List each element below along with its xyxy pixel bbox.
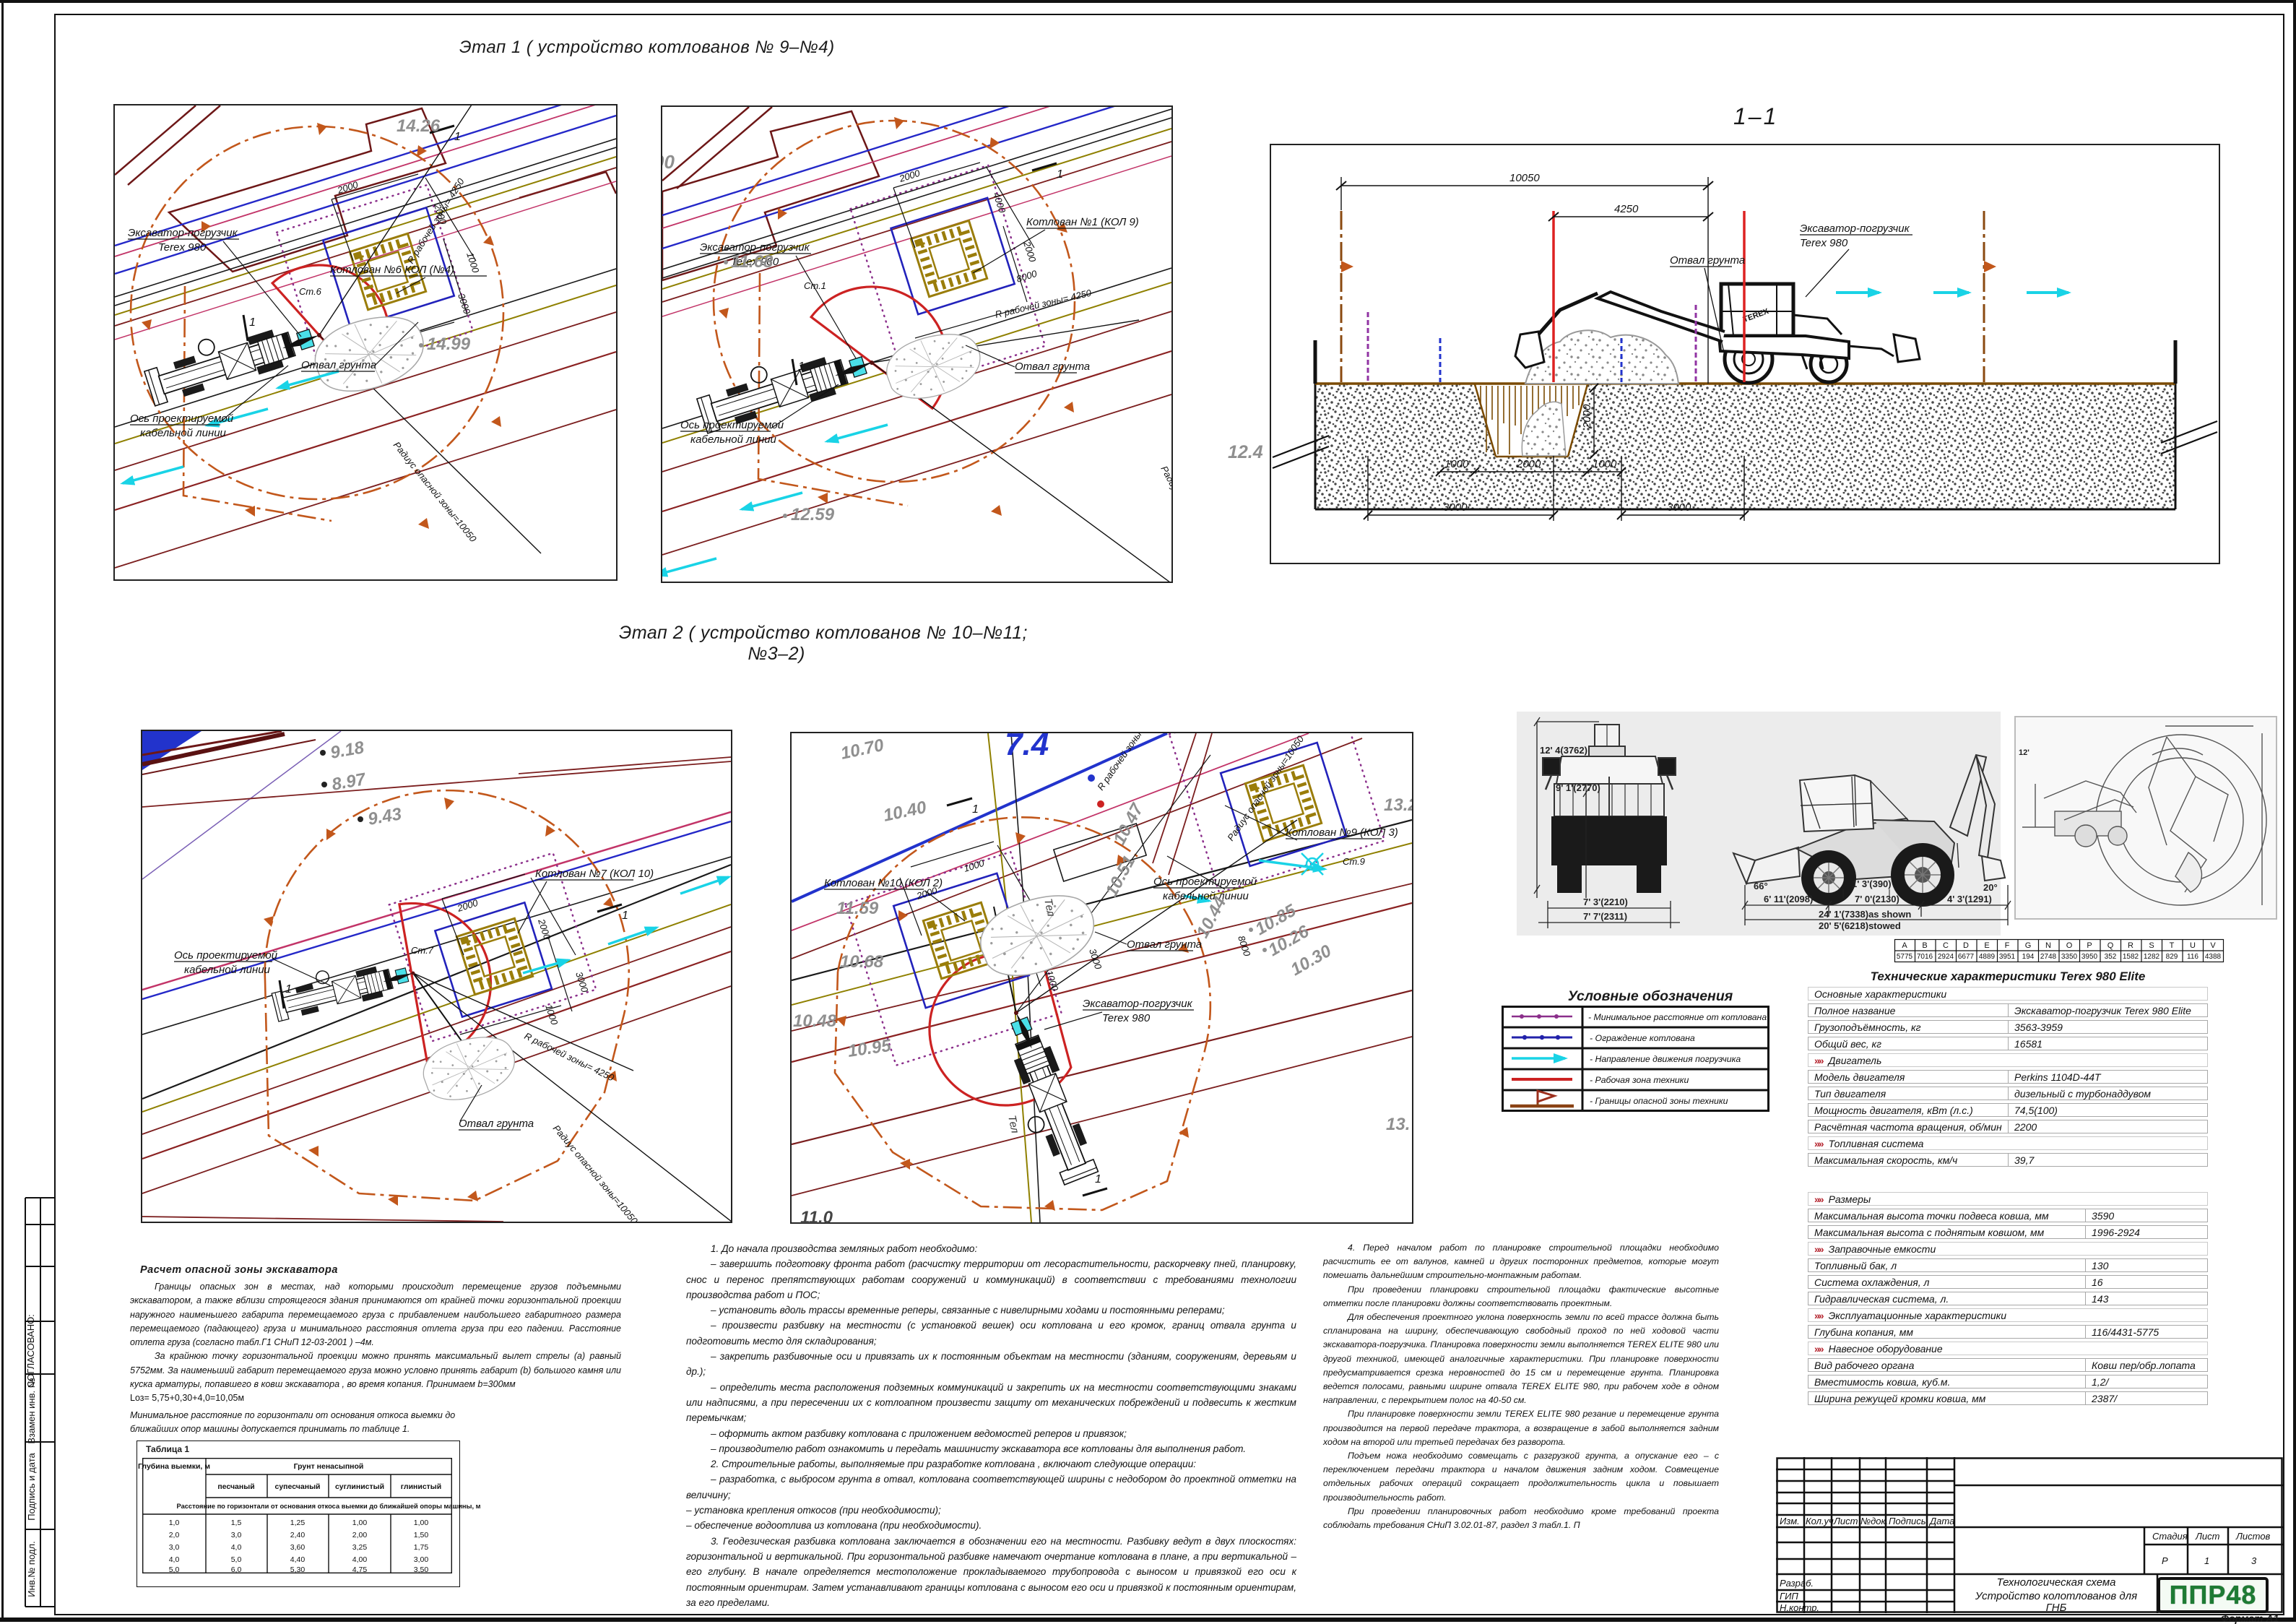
svg-text:4388: 4388 [2205, 953, 2222, 961]
svg-text:- Рабочая зона техники: - Рабочая зона техники [1590, 1075, 1689, 1085]
svg-text:E: E [1984, 941, 1989, 950]
svg-text:3000: 3000 [456, 292, 472, 316]
svg-text:Тел: Тел [1005, 1114, 1021, 1134]
svg-text:3000: 3000 [1667, 501, 1691, 514]
svg-text:Котлован №7 (КОЛ 10): Котлован №7 (КОЛ 10) [535, 868, 654, 880]
svg-text:1: 1 [1057, 168, 1063, 181]
svg-text:20°: 20° [1983, 882, 1998, 893]
svg-text:Радиус опасной зоны=10050: Радиус опасной зоны=10050 [1158, 464, 1173, 580]
svg-text:1: 1 [249, 316, 256, 329]
svg-text:Стадия: Стадия [2152, 1531, 2188, 1542]
svg-text:Взамен инв. №: Взамен инв. № [26, 1378, 37, 1443]
svg-text:Н.контр.: Н.контр. [1780, 1602, 1819, 1613]
svg-text:Технологическая схема: Технологическая схема [1997, 1576, 2116, 1589]
svg-text:Ст.9: Ст.9 [1343, 856, 1365, 867]
svg-text:A: A [1902, 941, 1907, 950]
svg-text:194: 194 [2022, 953, 2035, 961]
svg-text:20' 5'(6218)stowed: 20' 5'(6218)stowed [1819, 920, 1901, 931]
svg-text:829: 829 [2166, 953, 2178, 961]
svg-text:3,60: 3,60 [290, 1543, 306, 1552]
svg-text:12': 12' [2019, 748, 2029, 757]
svg-text:3000: 3000 [573, 970, 590, 994]
svg-text:1,50: 1,50 [414, 1531, 429, 1539]
svg-text:№док.: №док. [1860, 1516, 1888, 1526]
svg-text:11.59: 11.59 [836, 899, 879, 918]
svg-text:10.68: 10.68 [840, 952, 884, 972]
svg-text:суглинистый: суглинистый [335, 1482, 384, 1491]
svg-text:1: 1 [285, 983, 292, 995]
svg-text:10.95: 10.95 [846, 1036, 893, 1061]
svg-text:2000: 2000 [335, 179, 360, 196]
svg-text:B: B [1922, 941, 1927, 950]
svg-text:1: 1 [1095, 1173, 1101, 1185]
svg-text:4250: 4250 [1614, 203, 1639, 215]
svg-text:F: F [2005, 941, 2010, 950]
svg-text:3,0: 3,0 [169, 1543, 180, 1552]
svg-text:5,0: 5,0 [231, 1555, 242, 1564]
svg-text:Ось проектируемой: Ось проектируемой [1153, 876, 1257, 888]
svg-text:N: N [2045, 941, 2051, 950]
svg-text:6' 11'(2098): 6' 11'(2098) [1764, 894, 1813, 904]
svg-text:7' 7'(2311): 7' 7'(2311) [1583, 911, 1627, 922]
svg-text:5775: 5775 [1897, 953, 1913, 961]
svg-text:1: 1 [972, 803, 979, 816]
svg-text:1' 3'(390): 1' 3'(390) [1852, 878, 1892, 889]
svg-text:Эксаватор-погрузчик: Эксаватор-погрузчик [1083, 998, 1193, 1010]
svg-text:Ст.1: Ст.1 [804, 280, 826, 291]
svg-text:Отвал грунта: Отвал грунта [1015, 360, 1090, 373]
svg-text:Terex 980: Terex 980 [1800, 237, 1848, 249]
svg-text:3350: 3350 [2061, 953, 2078, 961]
svg-text:7' 3'(2210): 7' 3'(2210) [1583, 897, 1628, 907]
svg-text:5,30: 5,30 [290, 1565, 306, 1574]
svg-text:14.26: 14.26 [397, 116, 441, 136]
svg-text:V: V [2210, 941, 2216, 950]
svg-text:4,40: 4,40 [290, 1555, 306, 1564]
svg-text:Разраб.: Разраб. [1780, 1578, 1814, 1589]
svg-text:Дата: Дата [1928, 1516, 1954, 1526]
svg-text:Отвал грунта: Отвал грунта [301, 359, 376, 371]
svg-text:3,25: 3,25 [352, 1543, 368, 1552]
svg-text:4,75: 4,75 [352, 1565, 368, 1574]
svg-text:1,25: 1,25 [290, 1519, 306, 1527]
svg-text:3000: 3000 [1087, 947, 1104, 971]
svg-text:5,0: 5,0 [169, 1565, 180, 1574]
svg-text:- Минимальное расстояние от ко: - Минимальное расстояние от котлована [1588, 1012, 1767, 1022]
svg-text:2000: 2000 [455, 897, 480, 915]
svg-text:- Границы опасной зоны техники: - Границы опасной зоны техники [1590, 1096, 1728, 1106]
svg-text:7.4: 7.4 [1005, 732, 1049, 762]
svg-text:1000: 1000 [962, 858, 986, 874]
svg-text:Устройство колотлованов для: Устройство колотлованов для [1975, 1590, 2137, 1602]
svg-text:10.70: 10.70 [839, 735, 886, 764]
svg-text:6,0: 6,0 [231, 1565, 242, 1574]
svg-text:8000: 8000 [1015, 268, 1039, 285]
svg-text:Котлован №6 КОЛ (№4): Котлован №6 КОЛ (№4) [330, 264, 454, 276]
svg-text:C: C [1943, 941, 1949, 950]
svg-text:8000: 8000 [1236, 934, 1252, 958]
svg-text:Котлован №10 (КОЛ 2): Котлован №10 (КОЛ 2) [824, 877, 943, 889]
svg-text:3,0: 3,0 [231, 1531, 242, 1539]
svg-text:Котлован №9 (КОЛ 3): Котлован №9 (КОЛ 3) [1286, 826, 1398, 839]
svg-text:Листов: Листов [2235, 1531, 2271, 1542]
svg-text:супесчаный: супесчаный [275, 1482, 321, 1491]
svg-text:Р: Р [2162, 1555, 2168, 1566]
svg-text:Расстояние по горизонтали от о: Расстояние по горизонтали от основания о… [176, 1503, 480, 1510]
svg-text:1000: 1000 [1444, 458, 1469, 470]
svg-text:Эксаватор-погрузчик: Эксаватор-погрузчик [128, 227, 238, 239]
svg-text:P: P [2087, 941, 2092, 950]
svg-text:1000: 1000 [464, 251, 481, 275]
svg-text:14.99: 14.99 [427, 334, 471, 354]
svg-text:1: 1 [454, 131, 461, 143]
svg-text:2000: 2000 [1516, 458, 1541, 470]
svg-text:1,75: 1,75 [414, 1543, 429, 1552]
svg-text:2748: 2748 [2040, 953, 2057, 961]
svg-text:3,50: 3,50 [414, 1565, 429, 1574]
svg-text:Подпись: Подпись [1889, 1516, 1926, 1526]
svg-text:Кол.уч: Кол.уч [1806, 1516, 1834, 1526]
svg-text:66°: 66° [1754, 881, 1768, 891]
svg-text:2,40: 2,40 [290, 1531, 306, 1539]
svg-text:Ст.6: Ст.6 [299, 286, 322, 297]
svg-text:10.48: 10.48 [793, 1011, 837, 1031]
svg-text:1,5: 1,5 [231, 1519, 242, 1527]
svg-text:кабельной линии: кабельной линии [1163, 890, 1249, 902]
svg-text:2,00: 2,00 [352, 1531, 368, 1539]
svg-text:глинистый: глинистый [401, 1482, 441, 1491]
svg-text:2924: 2924 [1938, 953, 1954, 961]
svg-text:Отвал грунта: Отвал грунта [1127, 938, 1202, 951]
svg-text:Q: Q [2107, 941, 2114, 950]
svg-text:3000: 3000 [1443, 501, 1468, 514]
svg-text:Ось проектируемой: Ось проектируемой [174, 949, 278, 962]
svg-text:3951: 3951 [1999, 953, 2016, 961]
svg-text:3,00: 3,00 [414, 1555, 429, 1564]
svg-text:4,00: 4,00 [352, 1555, 368, 1564]
svg-text:Лист: Лист [1833, 1516, 1858, 1526]
svg-text:116: 116 [2187, 953, 2198, 961]
svg-text:10.51: 10.51 [1101, 852, 1139, 900]
svg-text:4889: 4889 [1979, 953, 1996, 961]
svg-text:Ось проектируемой: Ось проектируемой [130, 413, 234, 425]
svg-text:10.40: 10.40 [882, 798, 929, 826]
svg-text:- Ограждение котлована: - Ограждение котлована [1590, 1033, 1695, 1043]
svg-text:1,00: 1,00 [352, 1519, 368, 1527]
svg-text:Terex 980: Terex 980 [158, 241, 207, 254]
svg-text:Изм.: Изм. [1780, 1516, 1800, 1526]
svg-text:3950: 3950 [2081, 953, 2098, 961]
svg-text:Лист: Лист [2195, 1531, 2220, 1542]
svg-text:R: R [2128, 941, 2133, 950]
svg-text:11.68: 11.68 [731, 252, 774, 272]
svg-text:7' 0'(2130): 7' 0'(2130) [1855, 894, 1899, 904]
svg-text:Котлован №1 (КОЛ 9): Котлован №1 (КОЛ 9) [1026, 216, 1139, 228]
svg-text:R рабочей зоны= 4250: R рабочей зоны= 4250 [994, 287, 1093, 319]
svg-text:1: 1 [798, 360, 805, 373]
svg-text:СОГЛАСОВАНО:: СОГЛАСОВАНО: [25, 1314, 36, 1388]
svg-text:8.97: 8.97 [330, 769, 368, 795]
svg-text:G: G [2025, 941, 2032, 950]
svg-text:Отвал грунта: Отвал грунта [459, 1118, 534, 1130]
svg-text:3: 3 [2251, 1555, 2257, 1566]
svg-text:4,0: 4,0 [169, 1555, 180, 1564]
svg-text:Подпись и дата: Подпись и дата [26, 1452, 37, 1520]
svg-text:1282: 1282 [2144, 953, 2160, 961]
svg-text:9.18: 9.18 [329, 738, 365, 763]
svg-text:кабельной линии: кабельной линии [690, 433, 777, 446]
svg-text:1582: 1582 [2123, 953, 2139, 961]
svg-text:24' 1'(7338)as shown: 24' 1'(7338)as shown [1819, 909, 1911, 920]
svg-text:1: 1 [622, 910, 628, 922]
svg-text:13.: 13. [1386, 1115, 1410, 1134]
svg-text:12.59: 12.59 [791, 505, 835, 524]
svg-text:Грунт ненасыпной: Грунт ненасыпной [294, 1462, 364, 1471]
svg-text:1: 1 [2204, 1555, 2209, 1566]
svg-text:2000: 2000 [1581, 404, 1593, 429]
svg-text:9.43: 9.43 [366, 804, 403, 829]
svg-text:U: U [2190, 941, 2196, 950]
svg-text:Радиус опасной зоны=10050: Радиус опасной зоны=10050 [391, 439, 480, 544]
svg-text:2000: 2000 [536, 917, 553, 941]
svg-text:Ось проектируемой: Ось проектируемой [680, 419, 784, 431]
svg-text:D: D [1963, 941, 1969, 950]
svg-text:Радиус опасной зоны=10050: Радиус опасной зоны=10050 [551, 1123, 641, 1223]
svg-text:ГИП: ГИП [1780, 1591, 1798, 1602]
svg-text:ГНБ: ГНБ [2046, 1602, 2067, 1614]
svg-text:T: T [2170, 941, 2175, 950]
svg-text:кабельной линии: кабельной линии [140, 427, 227, 439]
svg-text:00: 00 [661, 151, 675, 173]
svg-text:4,0: 4,0 [231, 1543, 242, 1552]
svg-text:Эксаватор-погрузчик: Эксаватор-погрузчик [1800, 223, 1910, 235]
svg-text:12' 4(3762): 12' 4(3762) [1540, 745, 1587, 756]
svg-text:Ст.7: Ст.7 [411, 945, 434, 956]
svg-text:1,0: 1,0 [169, 1519, 180, 1527]
svg-text:4' 3'(1291): 4' 3'(1291) [1947, 894, 1992, 904]
svg-text:Инв.№ подл.: Инв.№ подл. [26, 1541, 37, 1597]
svg-text:O: O [2066, 941, 2073, 950]
svg-text:Terex 980: Terex 980 [1102, 1012, 1151, 1024]
svg-text:352: 352 [2105, 953, 2117, 961]
svg-text:1,00: 1,00 [414, 1519, 429, 1527]
svg-text:2000: 2000 [897, 168, 922, 185]
svg-text:кабельной линии: кабельной линии [184, 964, 271, 976]
svg-text:10050: 10050 [1509, 172, 1540, 184]
svg-text:2,0: 2,0 [169, 1531, 180, 1539]
svg-text:13.2: 13.2 [1384, 795, 1413, 815]
svg-text:7016: 7016 [1917, 953, 1933, 961]
svg-text:Отвал грунта: Отвал грунта [1670, 254, 1745, 267]
svg-text:S: S [2149, 941, 2154, 950]
svg-text:Глубина выемки, м: Глубина выемки, м [138, 1462, 210, 1471]
svg-text:1000: 1000 [1593, 458, 1617, 470]
svg-text:- Направление движения погрузч: - Направление движения погрузчика [1590, 1054, 1741, 1064]
svg-text:9' 1'(2770): 9' 1'(2770) [1556, 782, 1600, 793]
svg-text:песчаный: песчаный [217, 1482, 254, 1491]
svg-text:6677: 6677 [1958, 953, 1975, 961]
